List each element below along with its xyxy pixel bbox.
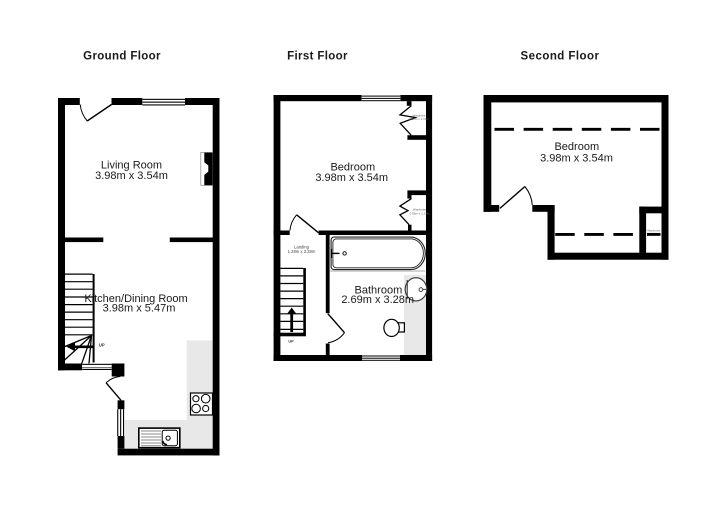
svg-text:UP: UP bbox=[99, 343, 105, 348]
svg-text:3.98m x 3.54m: 3.98m x 3.54m bbox=[315, 172, 388, 184]
svg-text:UP: UP bbox=[288, 339, 294, 343]
svg-text:First Floor: First Floor bbox=[287, 51, 348, 63]
svg-text:2.69m x 3.28m: 2.69m x 3.28m bbox=[341, 294, 414, 306]
svg-text:0.56m x 1.13m: 0.56m x 1.13m bbox=[410, 211, 430, 215]
svg-text:3.98m x 3.54m: 3.98m x 3.54m bbox=[540, 152, 613, 164]
svg-text:Bedroom: Bedroom bbox=[554, 141, 599, 153]
svg-text:Second Floor: Second Floor bbox=[521, 51, 600, 63]
svg-text:0.56m x 1.13m: 0.56m x 1.13m bbox=[409, 117, 429, 121]
svg-text:3.98m x 3.54m: 3.98m x 3.54m bbox=[95, 170, 168, 182]
svg-text:Ground Floor: Ground Floor bbox=[83, 51, 161, 63]
svg-text:1.28m x 3.28m: 1.28m x 3.28m bbox=[288, 249, 316, 254]
svg-text:Wardrobe: Wardrobe bbox=[647, 228, 660, 232]
svg-text:3.98m x 5.47m: 3.98m x 5.47m bbox=[103, 303, 176, 315]
